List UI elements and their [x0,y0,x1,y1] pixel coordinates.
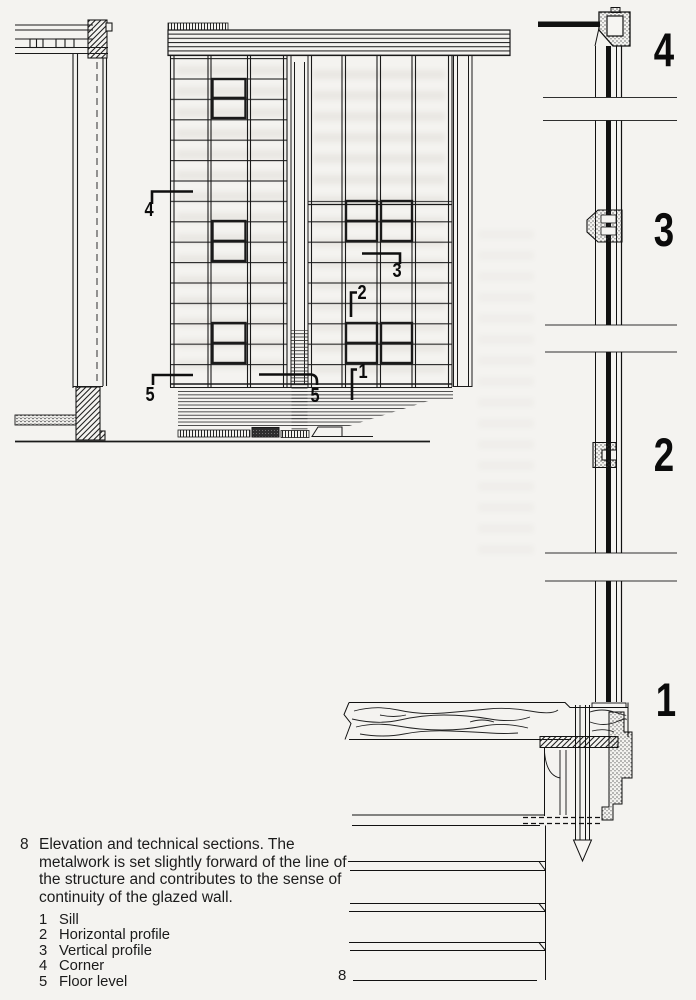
page-number: 8 [338,968,346,983]
corner-plan-detail [15,20,112,440]
elevation-drawing [15,23,510,442]
callout-floor-level-mid: 5 [308,386,323,406]
callout-horizontal-profile: 2 [355,283,370,303]
figure-caption: 8 Elevation and technical sections. The … [20,836,360,906]
section-label-horizontal-profile: 2 [648,431,679,478]
legend-label: Vertical profile [59,944,152,959]
vertical-profile-detail [587,210,622,242]
figure-caption-text: Elevation and technical sections. The me… [39,836,355,906]
scanned-book-page: { "page": { "paper_color": "#f4f3f0", "i… [0,0,696,1000]
legend-label: Horizontal profile [59,928,170,943]
figure-legend: 1 Sill 2 Horizontal profile 3 Vertical p… [20,913,170,990]
callout-sill: 1 [356,362,371,382]
callout-floor-level-left: 5 [143,385,158,405]
fascia-comb [168,23,228,30]
legend-label: Sill [59,913,79,928]
callout-corner: 4 [142,200,157,220]
section-label-sill: 1 [650,676,681,723]
sill-bracket [523,703,632,861]
fascia-band [168,30,510,56]
legend-item: 3 Vertical profile [20,944,170,959]
legend-item: 4 Corner [20,959,170,974]
figure-number: 8 [20,836,39,906]
legend-item: 1 Sill [20,913,170,928]
horizontal-profile-detail [593,443,616,468]
legend-item: 5 Floor level [20,975,170,990]
callout-vertical-profile: 3 [390,261,405,281]
sill-section-detail [344,703,632,981]
vertical-section-detail [538,8,677,703]
legend-item: 2 Horizontal profile [20,928,170,943]
section-label-corner: 4 [648,26,679,73]
right-edge-strip [454,56,473,387]
mullion-glazing-line [596,46,622,702]
cladding-bands [348,815,546,981]
packing-band [540,737,618,748]
legend-label: Corner [59,959,104,974]
legend-label: Floor level [59,975,127,990]
corner-profile-detail [538,8,630,47]
baseline-details [178,427,373,438]
section-label-vertical-profile: 3 [648,206,679,253]
